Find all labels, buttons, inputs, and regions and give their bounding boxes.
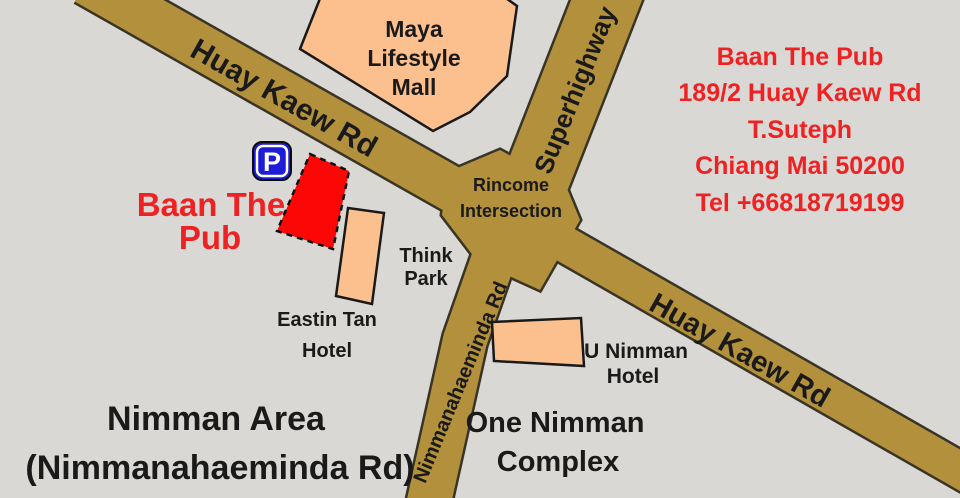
address-line5: Tel +66818719199: [696, 189, 905, 217]
label-think-park-line1: Think: [399, 245, 453, 267]
building-u-nimman: [492, 318, 584, 366]
label-maya-line2: Lifestyle: [367, 45, 460, 71]
address-line2: 189/2 Huay Kaew Rd: [678, 79, 921, 107]
label-maya-line1: Maya: [385, 16, 443, 42]
label-think-park: Think Park: [399, 245, 453, 290]
label-eastin-line1: Eastin Tan: [277, 309, 377, 331]
label-u-nimman-line2: Hotel: [607, 365, 660, 388]
label-eastin-tan-hotel: Eastin Tan Hotel: [277, 309, 377, 362]
label-nimman-area: Nimman Area (Nimmanahaeminda Rd): [25, 400, 414, 487]
label-venue-line1: Baan The: [137, 186, 286, 223]
label-one-nimman-complex: One Nimman Complex: [466, 407, 645, 478]
label-nimman-area-line1: Nimman Area: [107, 400, 326, 438]
label-eastin-line2: Hotel: [302, 340, 352, 362]
label-u-nimman-hotel: U Nimman Hotel: [584, 340, 688, 388]
building-think-park: [336, 208, 384, 304]
parking-icon-letter: P: [263, 147, 281, 177]
parking-icon: P: [253, 142, 291, 180]
label-nimman-area-line2: (Nimmanahaeminda Rd): [25, 449, 414, 487]
address-line3: T.Suteph: [748, 116, 852, 144]
label-maya-line3: Mall: [392, 74, 437, 100]
label-one-nimman-line2: Complex: [497, 446, 619, 478]
label-think-park-line2: Park: [404, 268, 448, 290]
label-rincome-line1: Rincome: [473, 175, 549, 195]
address-line1: Baan The Pub: [717, 43, 884, 71]
label-venue-line2: Pub: [179, 219, 241, 256]
label-u-nimman-line1: U Nimman: [584, 340, 688, 363]
location-map: P Huay Kaew Rd Huay Kaew Rd Superhighway…: [0, 0, 960, 498]
label-one-nimman-line1: One Nimman: [466, 407, 645, 439]
address-line4: Chiang Mai 50200: [695, 152, 905, 180]
label-baan-the-pub-marker: Baan The Pub: [137, 186, 286, 256]
label-rincome-line2: Intersection: [460, 201, 562, 221]
address-block: Baan The Pub 189/2 Huay Kaew Rd T.Suteph…: [678, 43, 921, 217]
map-canvas: P Huay Kaew Rd Huay Kaew Rd Superhighway…: [0, 0, 960, 498]
